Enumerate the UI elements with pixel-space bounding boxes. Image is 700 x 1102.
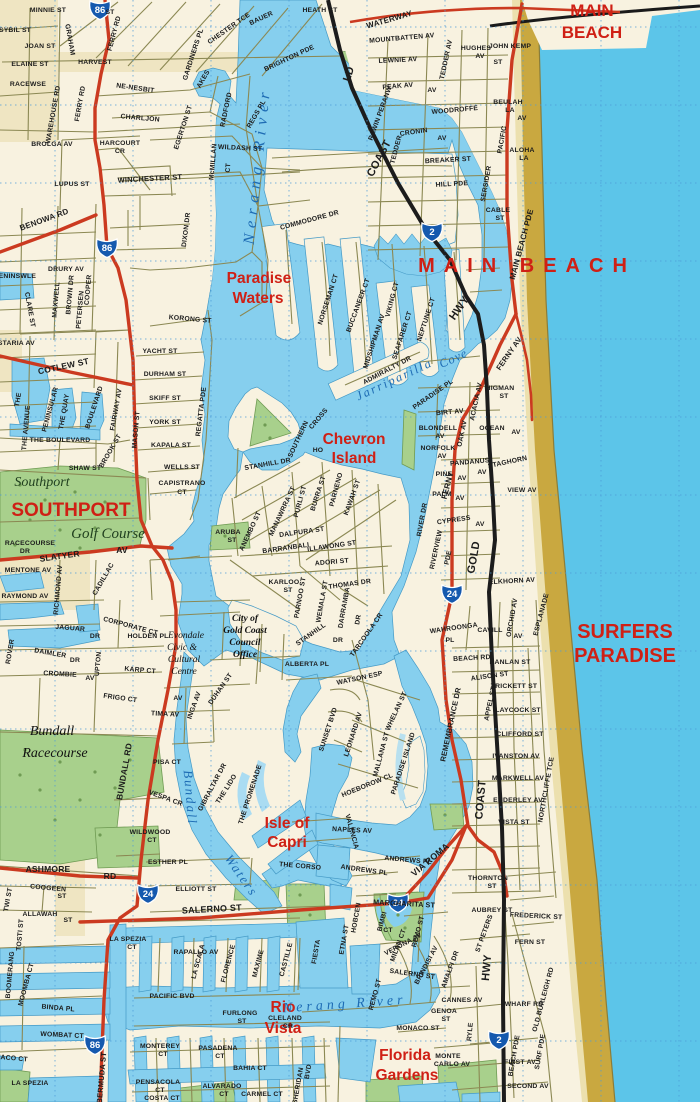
svg-text:ALLAWAH: ALLAWAH	[22, 911, 57, 918]
svg-text:BAHIA CT: BAHIA CT	[233, 1065, 267, 1072]
svg-text:CAPISTRANO: CAPISTRANO	[159, 480, 206, 487]
svg-text:HUGHES: HUGHES	[461, 45, 492, 52]
svg-text:ST: ST	[487, 883, 497, 890]
svg-text:2: 2	[496, 1035, 501, 1046]
svg-text:CLIFFORD ST: CLIFFORD ST	[496, 731, 544, 738]
svg-text:AV: AV	[475, 53, 485, 60]
svg-text:LUPUS ST: LUPUS ST	[54, 181, 90, 188]
svg-text:FIRST AV: FIRST AV	[504, 1059, 536, 1066]
svg-text:HIGMAN: HIGMAN	[486, 385, 515, 392]
svg-text:Cultural: Cultural	[168, 655, 201, 665]
svg-text:HANLAN ST: HANLAN ST	[489, 659, 531, 666]
svg-text:ELAINE ST: ELAINE ST	[11, 61, 49, 68]
svg-text:AV: AV	[477, 469, 487, 476]
svg-text:ST: ST	[63, 917, 73, 924]
svg-text:24: 24	[143, 889, 154, 900]
svg-text:WISTARIA AV: WISTARIA AV	[0, 340, 35, 347]
svg-text:CABLE: CABLE	[486, 207, 511, 214]
svg-text:ST: ST	[441, 1016, 451, 1023]
svg-text:Centre: Centre	[171, 667, 197, 677]
svg-text:86: 86	[102, 243, 113, 254]
svg-text:PISA CT: PISA CT	[153, 759, 182, 766]
svg-text:PENSACOLA: PENSACOLA	[136, 1079, 180, 1086]
svg-text:CANNES AV: CANNES AV	[441, 997, 482, 1004]
svg-text:ALOHA: ALOHA	[509, 147, 534, 154]
svg-text:PARADISE: PARADISE	[574, 645, 676, 667]
svg-text:HARCOURT: HARCOURT	[100, 140, 141, 147]
svg-text:CAVILL: CAVILL	[477, 627, 502, 634]
svg-text:GENOA: GENOA	[431, 1008, 457, 1015]
svg-text:Island: Island	[332, 450, 377, 467]
svg-text:ELLIOTT ST: ELLIOTT ST	[176, 886, 218, 893]
svg-text:Gold Coast: Gold Coast	[223, 626, 267, 636]
svg-text:CLELAND: CLELAND	[268, 1015, 302, 1022]
svg-text:MAIN: MAIN	[570, 1, 613, 20]
svg-text:RD: RD	[104, 871, 117, 881]
svg-text:CARLO AV: CARLO AV	[434, 1061, 471, 1068]
svg-text:DR: DR	[333, 637, 343, 644]
svg-text:IVANSTON AV: IVANSTON AV	[492, 753, 540, 760]
svg-text:CT: CT	[383, 927, 393, 934]
svg-text:WHARF RD: WHARF RD	[505, 1001, 544, 1008]
svg-text:ST: ST	[493, 59, 503, 66]
svg-text:BEULAH: BEULAH	[493, 99, 523, 106]
svg-text:City of: City of	[232, 614, 259, 624]
svg-text:TRICKETT ST: TRICKETT ST	[491, 683, 538, 690]
svg-text:ALVARADO: ALVARADO	[202, 1083, 241, 1090]
svg-text:AV: AV	[513, 633, 523, 640]
svg-text:BROLGA AV: BROLGA AV	[31, 141, 73, 148]
svg-text:ST: ST	[57, 893, 67, 900]
svg-text:Office: Office	[233, 650, 258, 660]
svg-text:AV: AV	[455, 495, 465, 502]
svg-text:CT: CT	[177, 489, 187, 496]
svg-text:BEACH: BEACH	[562, 23, 622, 42]
svg-text:ST: ST	[227, 537, 237, 544]
svg-text:2: 2	[429, 227, 434, 238]
svg-text:FERN ST: FERN ST	[515, 939, 546, 946]
svg-text:CR: CR	[115, 148, 125, 155]
svg-text:SURFERS: SURFERS	[577, 621, 673, 643]
svg-text:Waters: Waters	[232, 290, 283, 307]
svg-text:HEATH ST: HEATH ST	[302, 7, 338, 14]
svg-text:ST: ST	[237, 1018, 247, 1025]
svg-text:86: 86	[95, 5, 106, 16]
svg-text:ASHMORE: ASHMORE	[26, 864, 71, 874]
svg-text:AV: AV	[427, 87, 437, 94]
svg-text:DURHAM ST: DURHAM ST	[144, 371, 187, 378]
svg-text:SHAW ST: SHAW ST	[69, 465, 102, 472]
svg-text:LA: LA	[519, 155, 528, 162]
svg-text:ALBERTA PL: ALBERTA PL	[285, 661, 329, 668]
svg-text:Golf Course: Golf Course	[71, 526, 145, 542]
svg-text:PENINSWLE: PENINSWLE	[0, 273, 36, 280]
svg-text:HARVEST: HARVEST	[78, 59, 112, 66]
svg-text:MENTONE AV: MENTONE AV	[5, 567, 52, 574]
svg-text:CT: CT	[215, 1053, 225, 1060]
svg-text:PL: PL	[445, 637, 454, 644]
svg-text:LA SPEZIA: LA SPEZIA	[109, 936, 146, 943]
svg-text:DR: DR	[90, 633, 100, 640]
svg-text:86: 86	[90, 1040, 101, 1051]
svg-text:ST: ST	[283, 587, 293, 594]
svg-text:THE BOULEVARD: THE BOULEVARD	[30, 437, 91, 444]
svg-text:ST: ST	[499, 393, 509, 400]
svg-text:CARMEL CT: CARMEL CT	[241, 1091, 283, 1098]
svg-text:ENDERLEY AV: ENDERLEY AV	[493, 797, 543, 804]
svg-text:AV: AV	[116, 545, 128, 555]
svg-text:MONTE: MONTE	[435, 1053, 461, 1060]
svg-text:RAYMOND AV: RAYMOND AV	[1, 593, 48, 600]
svg-text:Paradise: Paradise	[227, 270, 292, 287]
svg-text:WILDWOOD: WILDWOOD	[130, 829, 171, 836]
svg-text:CT: CT	[225, 162, 233, 173]
svg-text:BLONDELL: BLONDELL	[419, 425, 458, 432]
svg-text:WELLS ST: WELLS ST	[164, 464, 201, 471]
svg-text:CT: CT	[147, 837, 157, 844]
svg-text:AV: AV	[517, 115, 527, 122]
svg-text:HO: HO	[313, 447, 324, 454]
svg-text:THORNTON: THORNTON	[468, 875, 508, 882]
svg-text:AV: AV	[435, 433, 445, 440]
svg-text:OCEAN: OCEAN	[479, 425, 505, 432]
svg-text:RAPALLO AV: RAPALLO AV	[174, 949, 219, 956]
svg-text:CT: CT	[158, 1051, 168, 1058]
svg-text:SYBIL ST: SYBIL ST	[0, 27, 32, 34]
svg-text:CT: CT	[219, 1091, 229, 1098]
svg-text:Council: Council	[229, 638, 261, 648]
svg-text:CT: CT	[155, 1087, 165, 1094]
svg-text:DR: DR	[20, 548, 30, 555]
svg-text:KARLOO: KARLOO	[269, 579, 300, 586]
svg-text:Civic &: Civic &	[167, 643, 197, 653]
svg-text:TIMA AV: TIMA AV	[151, 710, 180, 718]
svg-text:SOUTHPORT: SOUTHPORT	[11, 500, 131, 521]
svg-text:ST: ST	[105, 9, 115, 16]
svg-text:SECOND AV: SECOND AV	[507, 1083, 549, 1090]
svg-text:MONTEREY: MONTEREY	[140, 1043, 180, 1050]
svg-text:NORFOLK: NORFOLK	[420, 445, 455, 452]
svg-text:ARUBA: ARUBA	[215, 529, 241, 536]
svg-text:JOAN ST: JOAN ST	[25, 43, 57, 50]
svg-text:Gardens: Gardens	[376, 1067, 439, 1084]
svg-text:CR: CR	[283, 1023, 293, 1030]
svg-text:PASADENA: PASADENA	[198, 1045, 237, 1052]
svg-text:MINNIE ST: MINNIE ST	[30, 7, 67, 14]
svg-text:RACEWSE: RACEWSE	[10, 81, 46, 88]
svg-text:MAIN BEACH: MAIN BEACH	[418, 255, 636, 277]
svg-text:DRURY AV: DRURY AV	[48, 266, 84, 273]
svg-text:PINE: PINE	[436, 471, 453, 478]
svg-text:LA SPEZIA: LA SPEZIA	[11, 1080, 48, 1087]
svg-text:Isle of: Isle of	[265, 815, 311, 832]
svg-text:AV: AV	[475, 521, 485, 528]
svg-text:AUBREY ST: AUBREY ST	[472, 907, 514, 914]
svg-text:YACHT ST: YACHT ST	[143, 348, 179, 355]
svg-text:KAPALA ST: KAPALA ST	[151, 442, 192, 449]
svg-text:ST: ST	[495, 215, 505, 222]
svg-text:HWY: HWY	[480, 954, 494, 982]
svg-text:DR: DR	[70, 657, 80, 664]
svg-text:Chevron: Chevron	[323, 431, 386, 448]
svg-text:24: 24	[447, 589, 458, 600]
svg-text:LA: LA	[505, 107, 514, 114]
svg-text:RACECOURSE: RACECOURSE	[5, 540, 56, 547]
svg-text:Racecourse: Racecourse	[21, 746, 87, 761]
svg-text:AV: AV	[437, 135, 447, 142]
svg-text:COSTA CT: COSTA CT	[144, 1095, 180, 1102]
svg-text:AV: AV	[173, 695, 183, 702]
svg-text:FURLONG: FURLONG	[222, 1010, 257, 1017]
svg-text:AV: AV	[437, 453, 447, 460]
svg-text:VIEW AV: VIEW AV	[507, 487, 537, 494]
svg-text:AV: AV	[457, 475, 467, 482]
svg-text:Evondale: Evondale	[167, 631, 204, 641]
svg-text:CT: CT	[127, 944, 137, 951]
svg-text:PALM: PALM	[432, 491, 452, 498]
svg-text:PACIFIC BVD: PACIFIC BVD	[149, 993, 194, 1000]
svg-text:Florida: Florida	[379, 1047, 431, 1064]
svg-text:AV: AV	[511, 429, 521, 436]
svg-text:Bundall: Bundall	[30, 724, 74, 739]
svg-text:MARKWELL AV: MARKWELL AV	[492, 775, 545, 782]
svg-text:SKIFF ST: SKIFF ST	[149, 395, 181, 402]
svg-text:LAYCOCK ST: LAYCOCK ST	[495, 707, 541, 714]
svg-text:YORK ST: YORK ST	[149, 419, 181, 426]
svg-text:JOHN KEMP: JOHN KEMP	[489, 43, 531, 50]
svg-text:ESTHER PL: ESTHER PL	[148, 859, 188, 866]
svg-text:Capri: Capri	[267, 834, 307, 851]
svg-text:VISTA ST: VISTA ST	[498, 819, 530, 826]
svg-text:MONACO ST: MONACO ST	[396, 1025, 440, 1032]
svg-text:Southport: Southport	[14, 475, 70, 490]
